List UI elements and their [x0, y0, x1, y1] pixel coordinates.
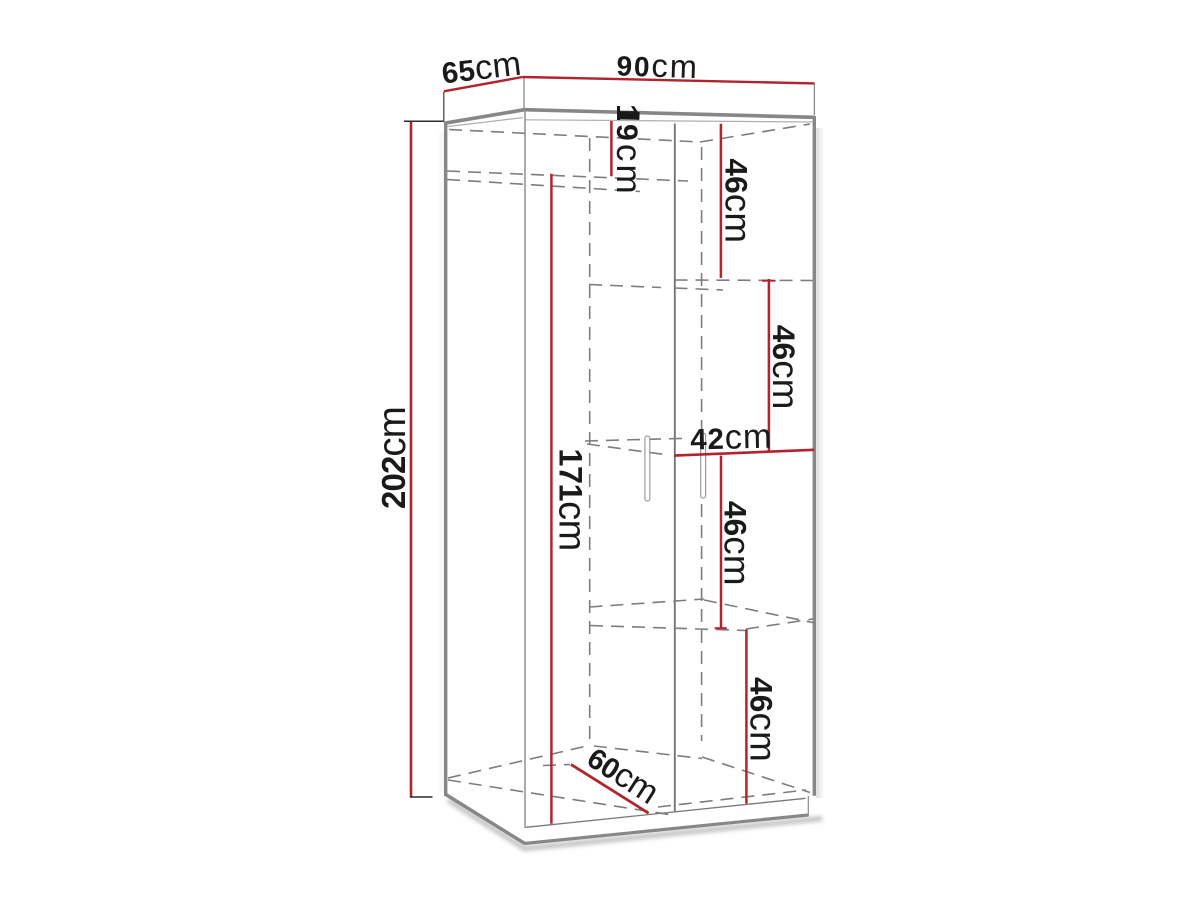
svg-text:90cm: 90cm: [616, 45, 700, 85]
svg-text:46cm: 46cm: [717, 501, 758, 586]
svg-text:171cm: 171cm: [551, 448, 593, 550]
svg-text:42cm: 42cm: [690, 418, 773, 458]
svg-text:202cm: 202cm: [371, 407, 414, 509]
svg-text:46cm: 46cm: [718, 158, 759, 243]
svg-text:46cm: 46cm: [743, 677, 784, 762]
svg-text:19cm: 19cm: [609, 104, 648, 197]
svg-text:46cm: 46cm: [765, 325, 806, 410]
